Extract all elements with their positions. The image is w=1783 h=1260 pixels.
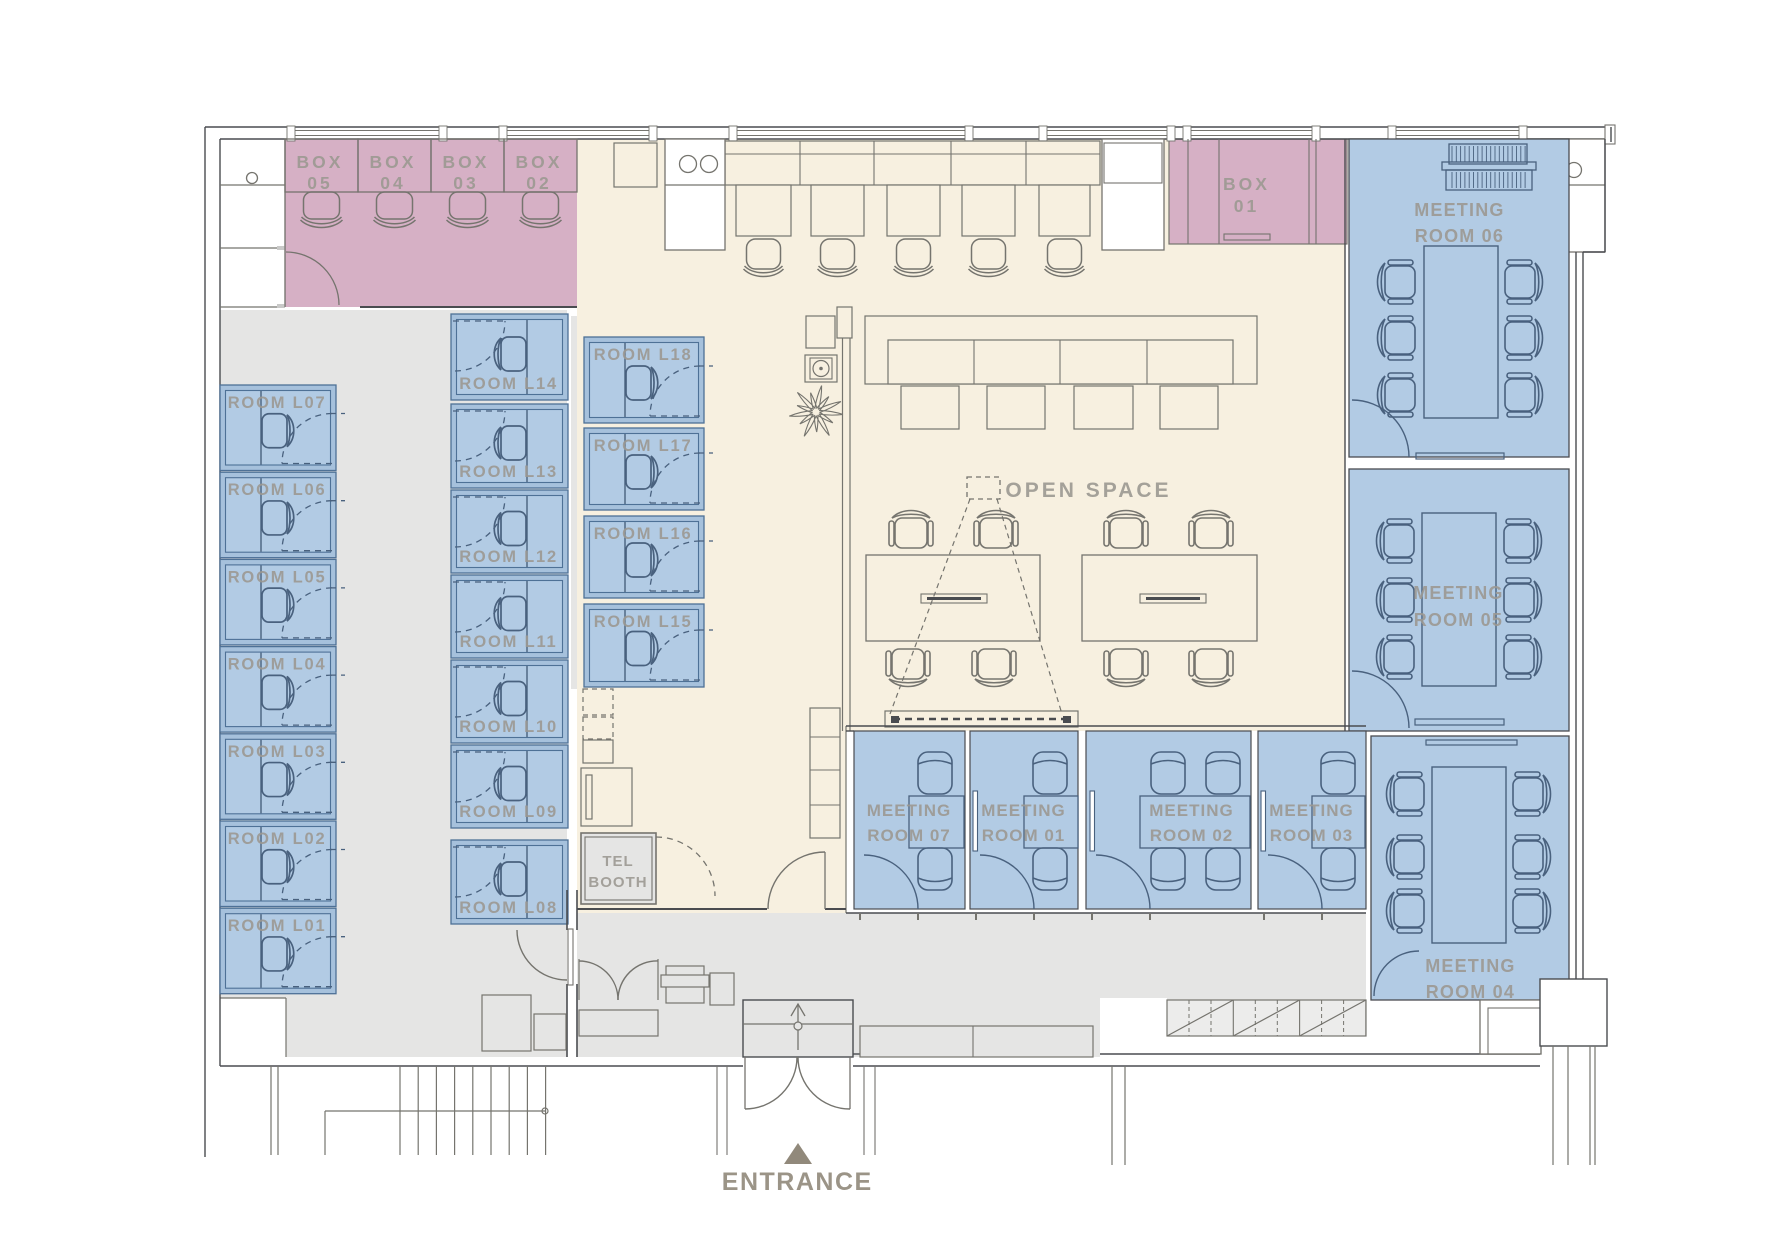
svg-text:ROOM L04: ROOM L04 bbox=[228, 656, 327, 674]
svg-text:MEETING: MEETING bbox=[1425, 956, 1515, 976]
svg-text:BOX: BOX bbox=[297, 152, 344, 172]
svg-text:05: 05 bbox=[307, 173, 332, 193]
svg-text:ENTRANCE: ENTRANCE bbox=[722, 1168, 873, 1196]
svg-text:ROOM L15: ROOM L15 bbox=[594, 613, 693, 631]
svg-text:ROOM 04: ROOM 04 bbox=[1426, 982, 1515, 1002]
svg-text:MEETING: MEETING bbox=[867, 801, 951, 820]
svg-text:ROOM 07: ROOM 07 bbox=[867, 826, 951, 845]
svg-text:MEETING: MEETING bbox=[1269, 801, 1353, 820]
svg-text:BOX: BOX bbox=[516, 152, 563, 172]
svg-text:ROOM L18: ROOM L18 bbox=[594, 346, 693, 364]
svg-text:ROOM L03: ROOM L03 bbox=[228, 743, 327, 761]
svg-text:ROOM 06: ROOM 06 bbox=[1415, 226, 1504, 246]
svg-text:04: 04 bbox=[380, 173, 405, 193]
svg-text:MEETING: MEETING bbox=[1413, 583, 1503, 603]
svg-text:ROOM 03: ROOM 03 bbox=[1270, 826, 1354, 845]
svg-text:02: 02 bbox=[526, 173, 551, 193]
svg-text:ROOM L08: ROOM L08 bbox=[459, 899, 558, 917]
svg-text:ROOM L10: ROOM L10 bbox=[459, 718, 558, 736]
svg-text:ROOM L16: ROOM L16 bbox=[594, 525, 693, 543]
svg-text:ROOM 02: ROOM 02 bbox=[1150, 826, 1234, 845]
svg-text:ROOM L09: ROOM L09 bbox=[459, 803, 558, 821]
svg-text:MEETING: MEETING bbox=[1149, 801, 1233, 820]
svg-text:01: 01 bbox=[1234, 196, 1259, 216]
svg-text:03: 03 bbox=[453, 173, 478, 193]
svg-text:ROOM L02: ROOM L02 bbox=[228, 830, 327, 848]
svg-text:ROOM 05: ROOM 05 bbox=[1414, 610, 1503, 630]
svg-text:ROOM L07: ROOM L07 bbox=[228, 394, 327, 412]
svg-text:ROOM L12: ROOM L12 bbox=[459, 548, 558, 566]
svg-text:ROOM 01: ROOM 01 bbox=[982, 826, 1066, 845]
svg-text:MEETING: MEETING bbox=[981, 801, 1065, 820]
svg-text:ROOM L11: ROOM L11 bbox=[460, 633, 558, 651]
svg-text:ROOM L05: ROOM L05 bbox=[228, 568, 327, 586]
svg-text:BOX: BOX bbox=[1223, 174, 1270, 194]
svg-text:ROOM L01: ROOM L01 bbox=[228, 917, 327, 935]
svg-text:ROOM L06: ROOM L06 bbox=[228, 481, 327, 499]
svg-text:MEETING: MEETING bbox=[1414, 200, 1504, 220]
svg-text:ROOM L17: ROOM L17 bbox=[594, 437, 693, 455]
svg-text:BOOTH: BOOTH bbox=[588, 874, 647, 891]
svg-text:ROOM L14: ROOM L14 bbox=[459, 375, 558, 393]
svg-text:ROOM L13: ROOM L13 bbox=[459, 463, 558, 481]
svg-text:TEL: TEL bbox=[602, 853, 633, 870]
svg-text:BOX: BOX bbox=[443, 152, 490, 172]
svg-text:BOX: BOX bbox=[370, 152, 417, 172]
svg-text:OPEN SPACE: OPEN SPACE bbox=[1005, 479, 1171, 502]
